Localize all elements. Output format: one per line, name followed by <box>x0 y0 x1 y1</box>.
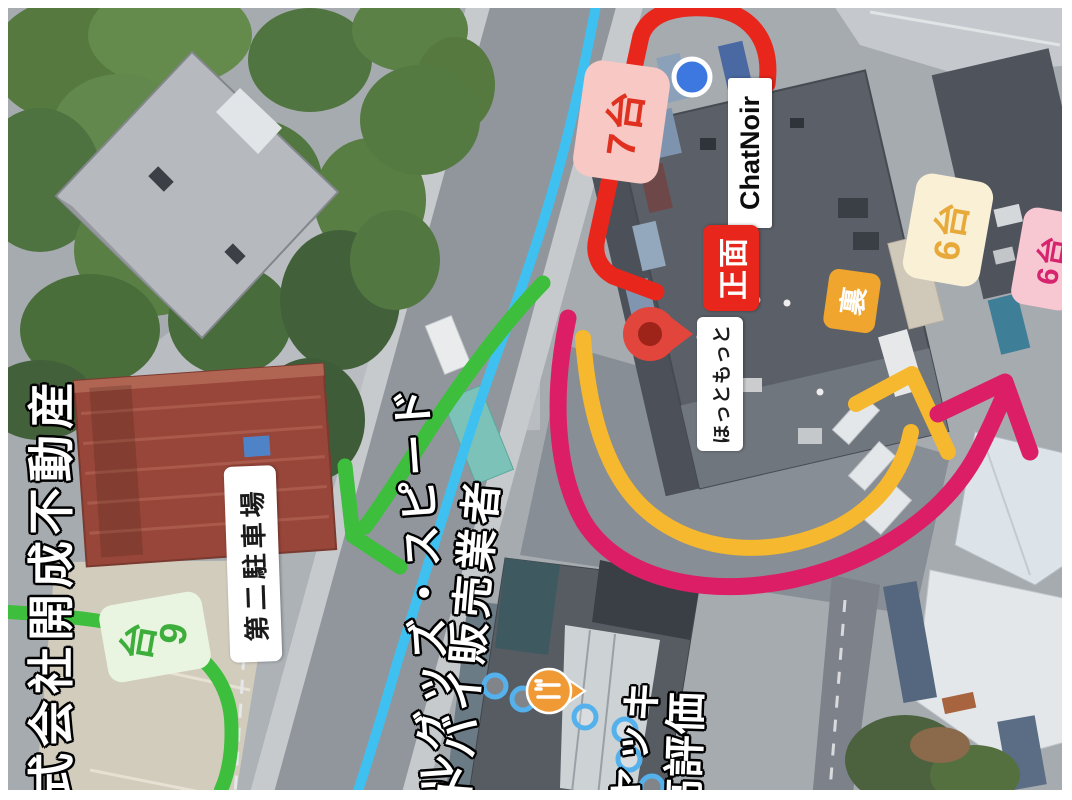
map-canvas: 7台 ChatNoir 正面 ほっともっと 裏 6台 6台 台9 第二駐車場 式… <box>8 8 1062 790</box>
back-side-label: 裏 <box>822 268 882 335</box>
front-side-label: 正面 <box>703 225 759 311</box>
hotto-motto-label: ほっともっと <box>697 317 743 451</box>
company-name-text: 式会社開成不動産 <box>13 350 71 790</box>
annotated-satellite-map: 7台 ChatNoir 正面 ほっともっと 裏 6台 6台 台9 第二駐車場 式… <box>0 0 1072 800</box>
rating-text: 高評価 <box>649 655 707 790</box>
second-parking-lot-label: 第二駐車場 <box>224 465 283 663</box>
front-parking-count-label: 7台 <box>571 58 672 186</box>
store-name-label: ChatNoir <box>728 78 772 228</box>
building-red-roof <box>74 364 336 567</box>
current-location-dot-icon <box>674 59 710 95</box>
